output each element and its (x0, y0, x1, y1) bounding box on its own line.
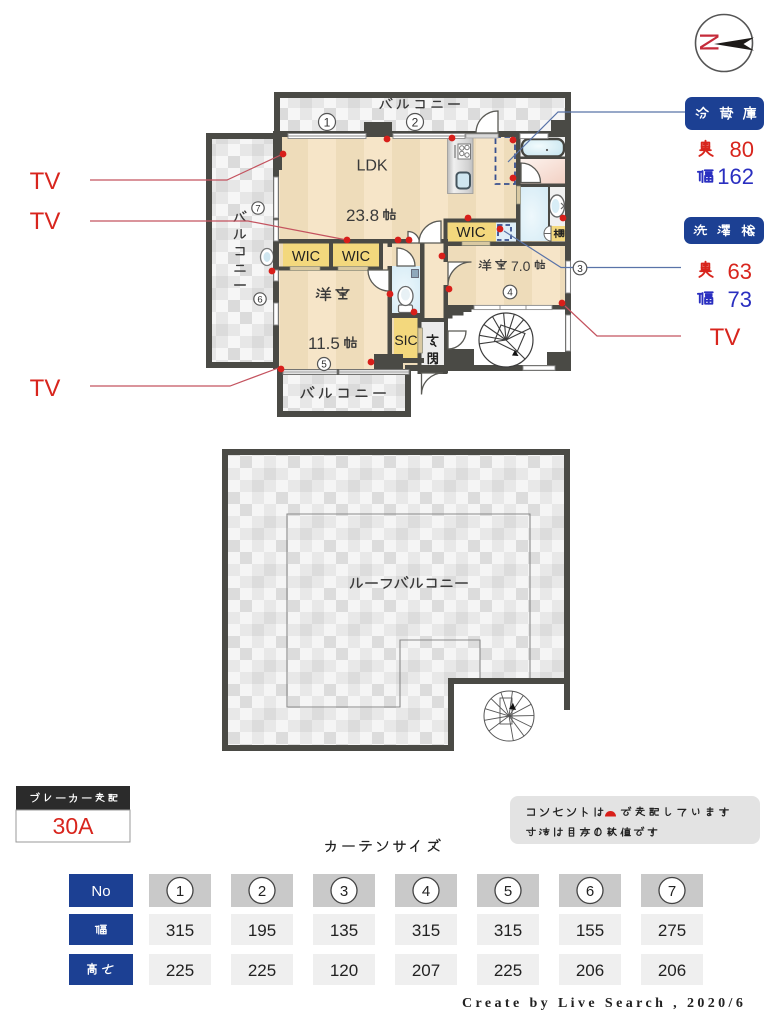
svg-text:206: 206 (576, 961, 604, 980)
svg-text:207: 207 (412, 961, 440, 980)
svg-text:Create by Live Search , 2020/6: Create by Live Search , 2020/6 (462, 996, 746, 1011)
svg-text:SIC: SIC (394, 332, 417, 348)
svg-text:135: 135 (330, 921, 358, 940)
svg-text:275: 275 (658, 921, 686, 940)
svg-text:1: 1 (324, 115, 331, 129)
svg-text:No: No (91, 883, 110, 900)
svg-text:WIC: WIC (292, 249, 320, 265)
svg-text:WIC: WIC (342, 249, 370, 265)
svg-text:225: 225 (248, 961, 276, 980)
svg-text:2: 2 (258, 883, 266, 900)
svg-text:206: 206 (658, 961, 686, 980)
svg-text:4: 4 (422, 883, 430, 900)
svg-text:195: 195 (248, 921, 276, 940)
svg-text:3: 3 (577, 264, 583, 275)
svg-text:4: 4 (507, 288, 513, 299)
svg-text:2: 2 (412, 115, 419, 129)
svg-text:3: 3 (340, 883, 348, 900)
svg-text:7: 7 (668, 883, 676, 900)
svg-text:TV: TV (30, 208, 61, 235)
svg-text:11.5: 11.5 (308, 334, 340, 353)
svg-text:30A: 30A (53, 813, 95, 839)
svg-text:N: N (694, 32, 724, 52)
svg-text:TV: TV (710, 324, 741, 351)
svg-text:315: 315 (494, 921, 522, 940)
svg-text:5: 5 (504, 883, 512, 900)
svg-text:TV: TV (30, 375, 61, 402)
svg-text:63: 63 (728, 259, 752, 284)
svg-text:80: 80 (730, 137, 754, 162)
svg-text:6: 6 (257, 294, 262, 305)
svg-text:73: 73 (728, 287, 752, 312)
svg-text:TV: TV (30, 168, 61, 195)
svg-text:120: 120 (330, 961, 358, 980)
svg-text:6: 6 (586, 883, 594, 900)
svg-text:225: 225 (494, 961, 522, 980)
svg-text:7.0: 7.0 (511, 258, 531, 274)
svg-text:1: 1 (176, 883, 184, 900)
svg-text:162: 162 (717, 164, 754, 189)
svg-text:315: 315 (412, 921, 440, 940)
svg-text:155: 155 (576, 921, 604, 940)
svg-text:225: 225 (166, 961, 194, 980)
svg-text:315: 315 (166, 921, 194, 940)
svg-text:LDK: LDK (356, 158, 387, 175)
svg-text:23.8: 23.8 (346, 206, 379, 225)
svg-text:7: 7 (255, 203, 260, 214)
svg-text:WIC: WIC (456, 224, 485, 241)
svg-text:5: 5 (321, 360, 327, 371)
